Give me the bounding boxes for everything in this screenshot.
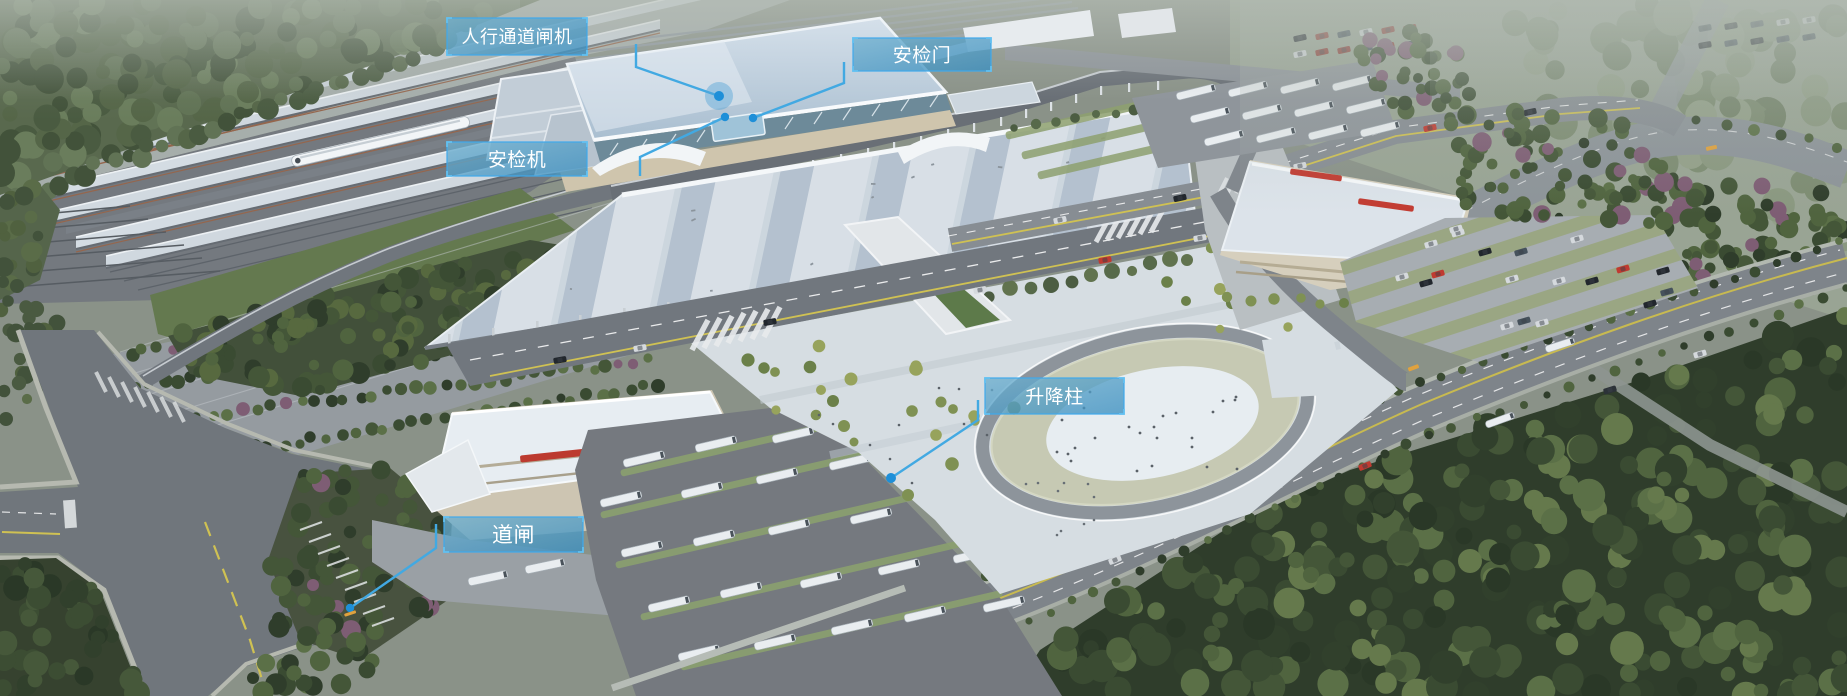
svg-text:安检机: 安检机 xyxy=(488,149,547,171)
svg-text:安检门: 安检门 xyxy=(893,44,952,66)
svg-text:道闸: 道闸 xyxy=(492,524,535,547)
svg-text:人行通道闸机: 人行通道闸机 xyxy=(462,27,573,47)
svg-text:升降柱: 升降柱 xyxy=(1025,386,1084,408)
